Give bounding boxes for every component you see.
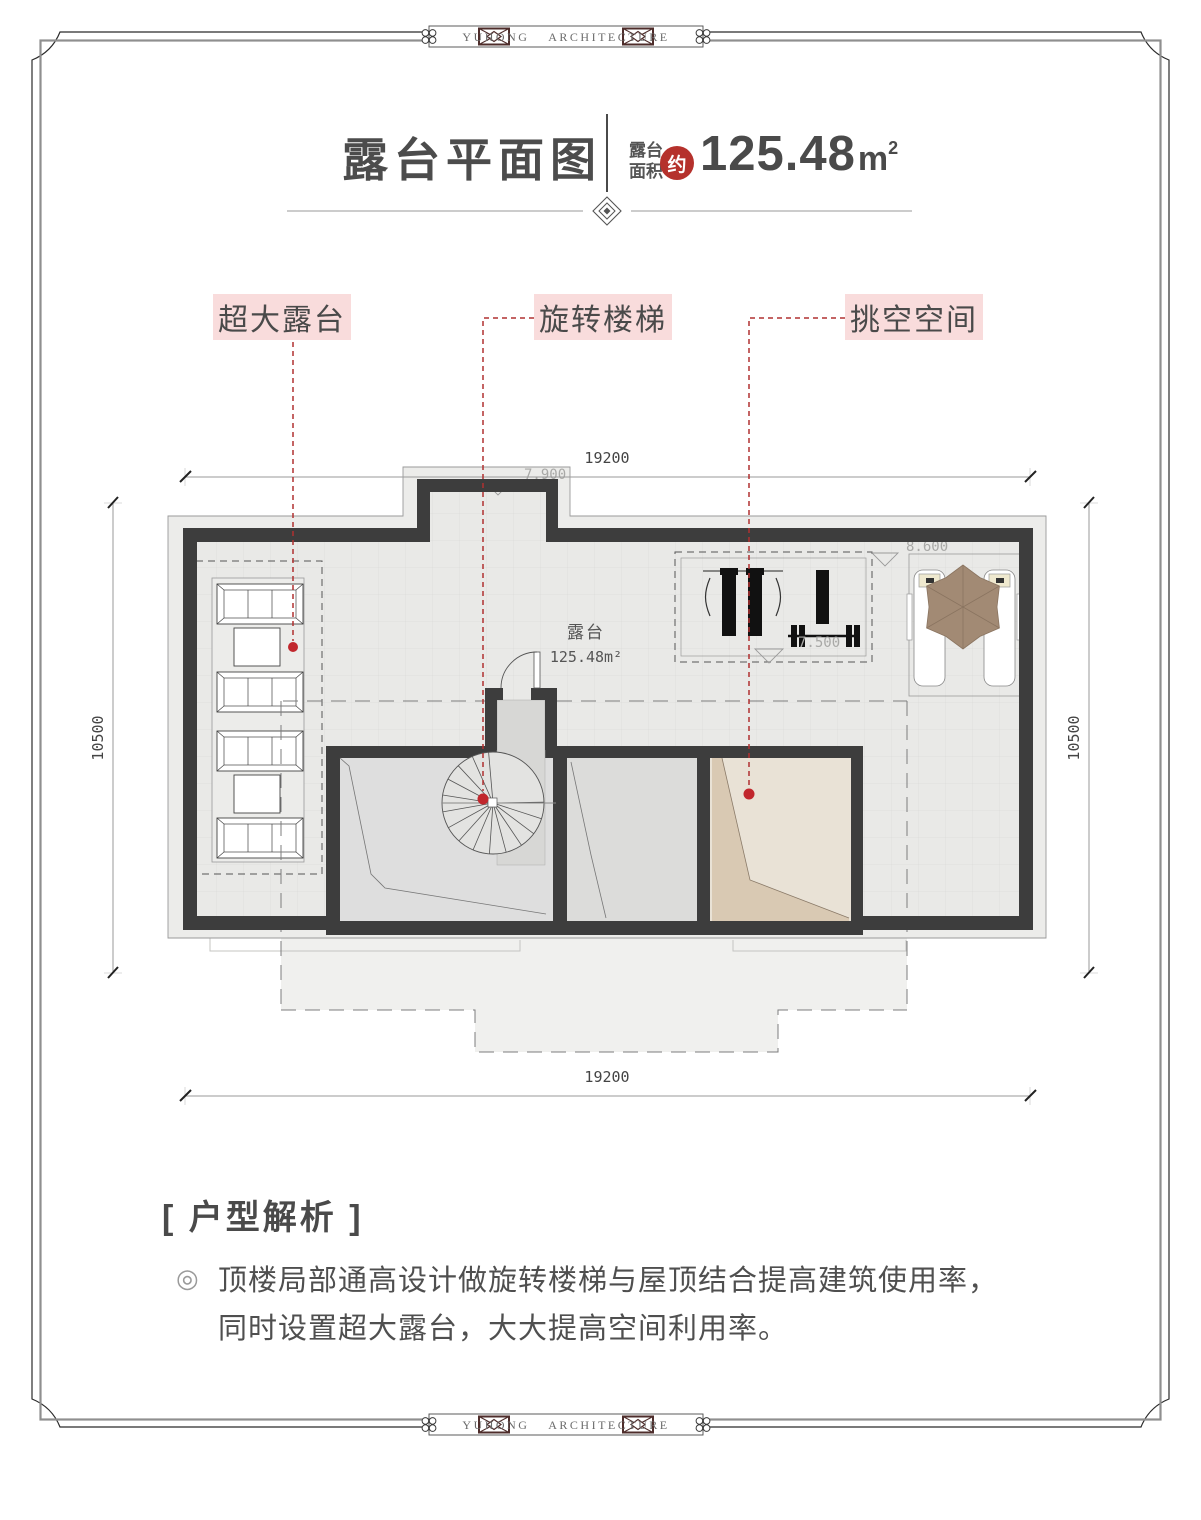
leader-dot-void (744, 789, 755, 800)
sofa (217, 818, 303, 858)
coffee-table (234, 775, 280, 813)
area-number: 125.48 (700, 126, 856, 182)
brand-band-top: YUHONG ARCHITECTURE (422, 26, 710, 47)
dim-right: 10500 (1065, 497, 1098, 978)
room-void (710, 758, 851, 921)
leader-dot-stairs (478, 794, 489, 805)
dim-top-text: 19200 (584, 449, 629, 467)
room-name-text: 露台 (567, 623, 605, 642)
analysis-line2: 同时设置超大露台，大大提高空间利用率。 (218, 1305, 998, 1353)
bullet-icon: ◎ (176, 1263, 199, 1294)
dim-left-text: 10500 (89, 715, 107, 760)
area-unit: m (858, 140, 888, 179)
area-value: 125.48 m 2 (700, 126, 898, 182)
brand-text-bottom: YUHONG ARCHITECTURE (462, 1418, 669, 1432)
dim-right-text: 10500 (1065, 715, 1083, 760)
sofa (217, 584, 303, 624)
analysis-title: [ 户型解析 ] (162, 1190, 364, 1239)
seating-area (196, 561, 322, 874)
approx-seal-icon: 约 (660, 146, 694, 180)
dim-left: 10500 (89, 497, 122, 978)
coffee-table (234, 628, 280, 666)
analysis-line1: 顶楼局部通高设计做旋转楼梯与屋顶结合提高建筑使用率， (218, 1257, 998, 1305)
page-title: 露台平面图 (342, 124, 602, 190)
dim-bottom: 19200 (180, 1068, 1036, 1105)
dim-bottom-text: 19200 (584, 1068, 629, 1086)
level-gym-text: 7.500 (798, 635, 840, 651)
sofa (217, 731, 303, 771)
room-area-text: 125.48m² (550, 648, 622, 666)
room-middle (567, 758, 697, 921)
callout-void: 挑空空间 (845, 294, 983, 340)
callout-terrace: 超大露台 (213, 294, 351, 340)
area-exponent: 2 (888, 138, 898, 159)
header-divider-bar (606, 114, 608, 192)
area-label-top: 露台 (629, 140, 663, 161)
leader-dot-terrace (288, 642, 298, 652)
area-label: 露台 面积 (629, 140, 663, 182)
roof-extension (210, 938, 907, 1052)
area-label-bottom: 面积 (629, 161, 663, 182)
callout-stairs: 旋转楼梯 (534, 294, 672, 340)
brand-text-top: YUHONG ARCHITECTURE (462, 30, 669, 44)
page: YUHONG ARCHITECTURE YUHONG ARCHITECTURE … (0, 0, 1201, 1520)
brand-band-bottom: YUHONG ARCHITECTURE (422, 1414, 710, 1435)
sofa (217, 672, 303, 712)
dim-top: 19200 (180, 449, 1036, 486)
header-divider (287, 197, 912, 225)
analysis-text: 顶楼局部通高设计做旋转楼梯与屋顶结合提高建筑使用率， 同时设置超大露台，大大提高… (218, 1257, 998, 1353)
divider-ornament-icon (593, 197, 621, 225)
